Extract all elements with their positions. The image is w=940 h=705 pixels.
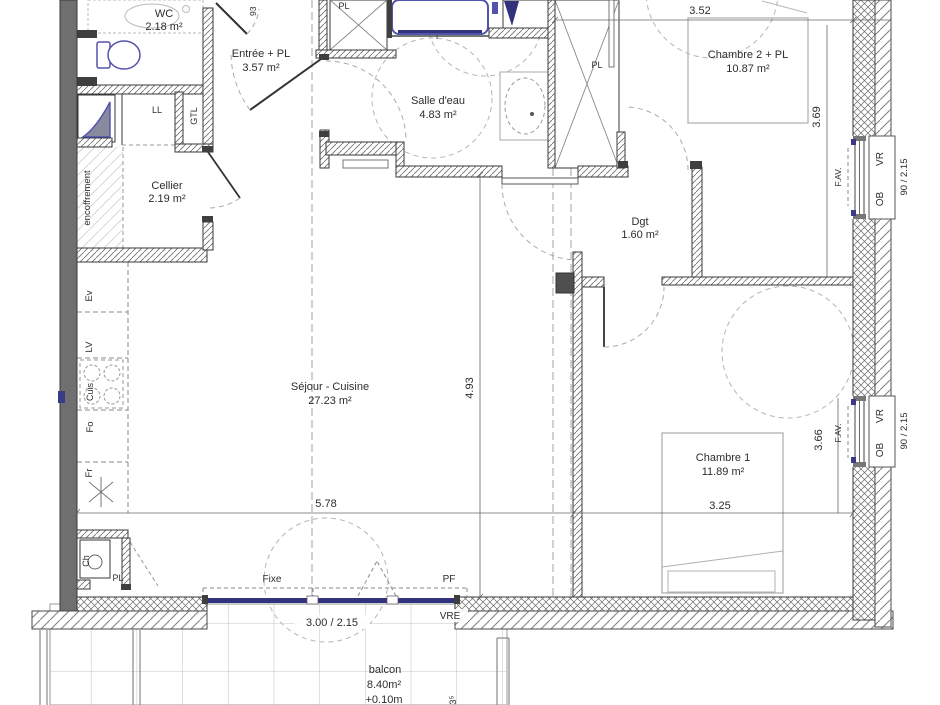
label-ll: LL: [152, 105, 162, 115]
window-hinge: [851, 457, 856, 463]
label-encoffrement: encoffrement: [82, 170, 93, 226]
room-label-chambre2: Chambre 2 + PL: [708, 49, 788, 61]
window-opening-dashes: [203, 561, 467, 597]
area-label-entree: 3.57 m²: [242, 62, 280, 74]
dim-sejour-width: 5.78: [315, 498, 336, 510]
area-label-sejour: 27.23 m²: [308, 395, 352, 407]
slab-edge-right: [455, 611, 893, 629]
area-label-chambre1: 11.89 m²: [702, 466, 745, 478]
dim-balcony-depth: 1.63⁵: [448, 696, 459, 705]
dim-chambre1-depth: 3.66: [813, 429, 825, 450]
door-swing-arc: [604, 287, 664, 347]
dim-chambre2-depth: 3.69: [811, 106, 823, 127]
washer-slot: [122, 93, 175, 145]
dim-window-right-2: 90 / 2.15: [899, 413, 910, 450]
label-pl-ch: PL: [112, 573, 123, 583]
label-pl-chambre2: PL: [591, 60, 602, 70]
label-gtl: GTL: [189, 107, 199, 125]
room-label-entree: Entrée + PL: [232, 48, 290, 60]
area-label-cellier: 2.19 m²: [148, 193, 186, 205]
window-hinge: [851, 399, 856, 405]
fridge-cross-icon: [89, 477, 113, 507]
window-glazing: [207, 598, 455, 603]
label-fr: Fr: [84, 469, 95, 478]
room-label-salle-eau: Salle d'eau: [411, 95, 465, 107]
label-ev: Ev: [84, 290, 95, 301]
chambre2-elements: [555, 0, 808, 170]
structural-column: [556, 273, 574, 293]
window-right-1: [848, 136, 895, 219]
right-wall-cladding: [875, 0, 891, 627]
window-right-2: [848, 396, 895, 467]
dim-balcony-window: 3.00 / 2.15: [306, 617, 358, 629]
cellier-door-leaf: [208, 152, 240, 198]
bed-cover-line: [662, 551, 783, 567]
label-fixe: Fixe: [263, 574, 282, 585]
room-label-dgt: Dgt: [631, 216, 648, 228]
wall-marker: [58, 391, 65, 403]
bottom-wall-right: [455, 597, 875, 612]
toilet-bowl: [108, 41, 140, 69]
room-label-sejour: Séjour - Cuisine: [291, 381, 369, 393]
window-jamb: [454, 595, 460, 604]
room-label-wc: WC: [155, 8, 173, 20]
area-label-dgt: 1.60 m²: [621, 229, 659, 241]
label-pf: PF: [443, 574, 456, 585]
label-vre: VRE: [440, 611, 461, 622]
label-ch: Ch: [81, 555, 91, 567]
shower-fixture: [392, 0, 488, 34]
slab-edge-left: [32, 611, 207, 629]
door-swing-arc: [326, 61, 406, 141]
vanity-faucet: [183, 6, 190, 13]
area-label-salle-eau: 4.83 m²: [419, 109, 457, 121]
area-label-chambre2: 10.87 m²: [726, 63, 770, 75]
window-label-ob-1: OB: [875, 191, 886, 206]
area-label-wc: 2.18 m²: [145, 21, 183, 33]
wc-door-leaf: [216, 3, 247, 34]
room-label-cellier: Cellier: [151, 180, 183, 192]
window-label-fav-2: F.AV.: [833, 424, 843, 443]
bed-pillow: [668, 571, 775, 592]
right-exterior-wall: [853, 0, 875, 620]
floor-plan-page: WC 2.18 m² Entrée + PL 3.57 m² Salle d'e…: [0, 0, 940, 705]
window-hinge: [851, 139, 856, 145]
area-label-balcon: 8.40m²: [367, 679, 402, 691]
washbasin-drain: [530, 112, 534, 116]
salle-eau-door-leaf: [502, 178, 578, 184]
closet-door-leaf: [130, 542, 158, 586]
door-swing-arc: [208, 198, 240, 208]
window-mullion: [307, 596, 318, 604]
window-jamb: [202, 595, 208, 604]
turning-circle: [722, 286, 854, 418]
label-lv: LV: [84, 341, 95, 353]
room-label-chambre1: Chambre 1: [696, 452, 750, 464]
cellier-elements: [77, 92, 240, 250]
window-label-vr-2: VR: [875, 409, 886, 423]
interior-walls: [60, 0, 853, 597]
closet-front: [609, 0, 614, 67]
window-hinge: [851, 210, 856, 216]
faucet-icon: [492, 2, 498, 14]
window-mullion: [387, 596, 398, 604]
dim-chambre1-width: 3.25: [709, 500, 730, 512]
bottom-wall-left: [77, 597, 207, 612]
label-cuis: Cuis: [85, 383, 95, 402]
washbasin-counter: [500, 72, 551, 140]
room-label-balcon: balcon: [369, 664, 401, 676]
floor-plan-svg: WC 2.18 m² Entrée + PL 3.57 m² Salle d'e…: [0, 0, 940, 705]
label-pl-entree: PL: [338, 1, 349, 11]
window-label-fav-1: F.AV.: [833, 168, 843, 187]
door-swing-arc: [502, 184, 578, 260]
label-fo: Fo: [85, 421, 96, 432]
bed-cover-line: [762, 1, 807, 13]
wc-fixtures: [88, 0, 203, 69]
door-swing-arc: [626, 107, 688, 170]
window-label-ob-2: OB: [875, 442, 886, 457]
left-exterior-wall: [60, 0, 77, 612]
radiator: [343, 160, 388, 168]
dim-chambre2-width: 3.52: [689, 5, 710, 17]
dim-entry-door: 93: [248, 6, 258, 16]
window-label-vr-1: VR: [875, 152, 886, 166]
level-label-balcon: +0.10m: [366, 694, 403, 705]
dim-sejour-depth: 4.93: [464, 377, 476, 398]
dim-window-right-1: 90 / 2.15: [899, 159, 910, 196]
